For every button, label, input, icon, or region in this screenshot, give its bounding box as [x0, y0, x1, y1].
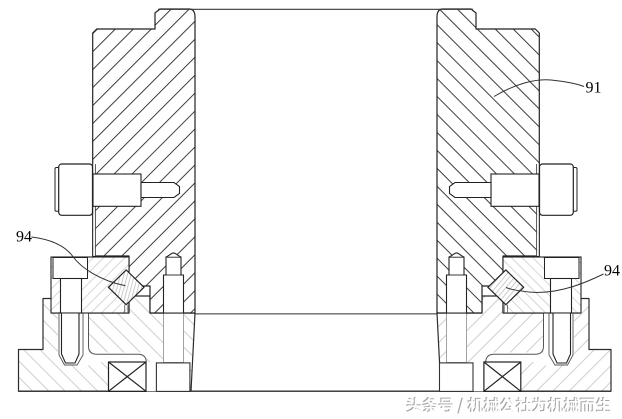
svg-text:94: 94: [604, 263, 620, 280]
svg-text:94: 94: [16, 229, 32, 246]
svg-text:91: 91: [586, 80, 602, 97]
